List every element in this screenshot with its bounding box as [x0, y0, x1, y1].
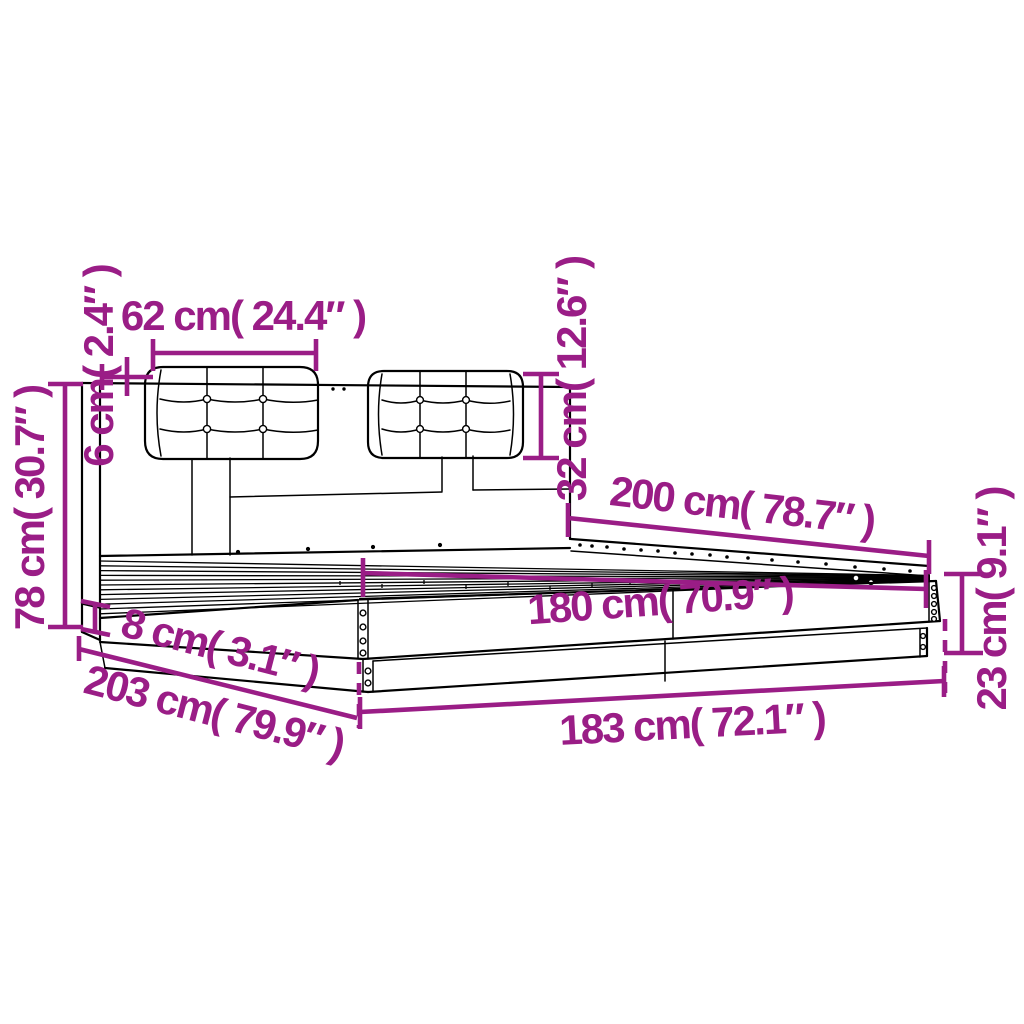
- dim-label-frame-height: 23 cm( 9.1″ ): [968, 488, 1016, 711]
- dim-label-headboard-height: 78 cm( 30.7″ ): [6, 386, 54, 630]
- dim-label-cushion-height: 32 cm( 12.6″ ): [548, 257, 596, 501]
- slat-deck: [100, 561, 930, 618]
- headboard-cushion-right: [368, 371, 523, 458]
- dim-label-cushion-width: 62 cm( 24.4″ ): [121, 292, 365, 340]
- headboard-cushion-left: [145, 367, 318, 459]
- diagram-canvas: 62 cm( 24.4″ ) 6 cm( 2.4″ ) 78 cm( 30.7″…: [0, 0, 1024, 1024]
- dim-label-cushion-thickness: 6 cm( 2.4″ ): [75, 265, 123, 467]
